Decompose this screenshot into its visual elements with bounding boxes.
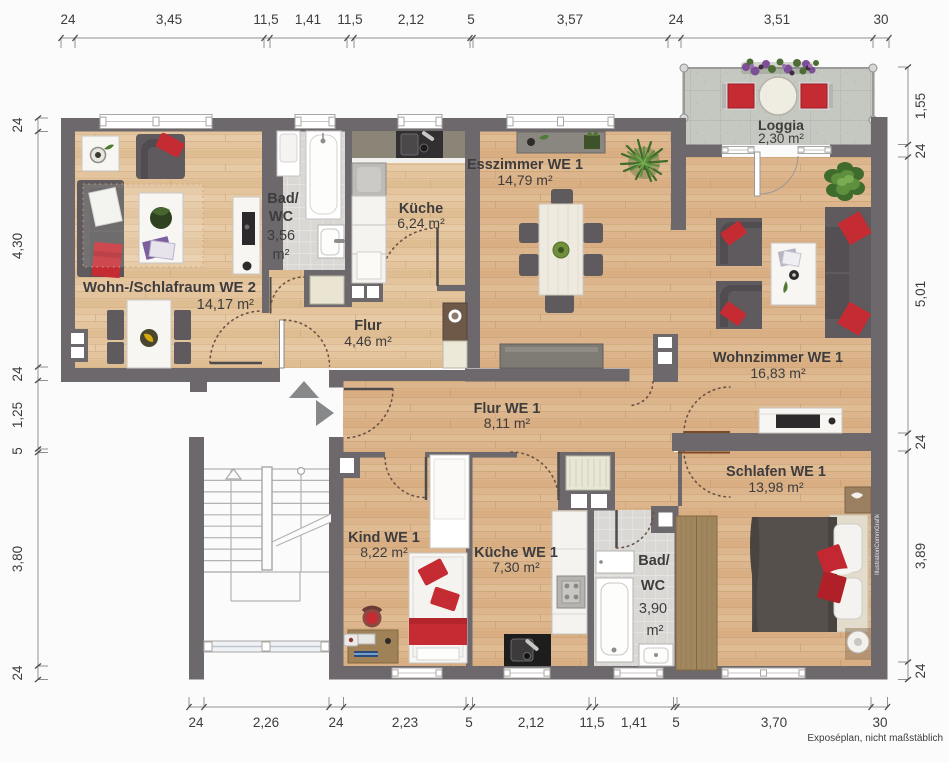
svg-text:24: 24 xyxy=(10,117,25,133)
svg-text:3,70: 3,70 xyxy=(761,715,787,730)
svg-text:3,51: 3,51 xyxy=(764,12,790,27)
svg-text:Esszimmer WE 1: Esszimmer WE 1 xyxy=(467,157,583,173)
svg-text:Bad/: Bad/ xyxy=(638,553,669,569)
svg-text:24: 24 xyxy=(913,663,928,679)
svg-text:3,89: 3,89 xyxy=(913,543,928,569)
svg-text:WC: WC xyxy=(641,578,666,594)
svg-text:14,17 m²: 14,17 m² xyxy=(197,297,254,313)
svg-text:Exposéplan, nicht maßstäblich: Exposéplan, nicht maßstäblich xyxy=(807,733,943,744)
svg-text:5: 5 xyxy=(465,715,473,730)
svg-text:24: 24 xyxy=(188,715,204,730)
svg-text:24: 24 xyxy=(10,665,25,681)
svg-text:Wohn-/Schlafraum WE 2: Wohn-/Schlafraum WE 2 xyxy=(83,279,256,296)
svg-text:3,56: 3,56 xyxy=(267,228,295,244)
svg-text:11,5: 11,5 xyxy=(579,715,604,730)
svg-text:2,23: 2,23 xyxy=(392,715,418,730)
svg-text:3,57: 3,57 xyxy=(557,12,583,27)
svg-text:2,26: 2,26 xyxy=(253,715,279,730)
svg-text:2,30 m²: 2,30 m² xyxy=(758,131,804,146)
svg-text:30: 30 xyxy=(873,12,888,27)
svg-text:Schlafen WE 1: Schlafen WE 1 xyxy=(726,464,826,480)
svg-text:5,01: 5,01 xyxy=(913,281,928,307)
svg-text:3,45: 3,45 xyxy=(156,12,182,27)
svg-text:14,79 m²: 14,79 m² xyxy=(497,172,553,188)
svg-text:6,24 m²: 6,24 m² xyxy=(397,215,445,231)
svg-text:1,25: 1,25 xyxy=(10,402,25,428)
svg-text:13,98 m²: 13,98 m² xyxy=(748,479,804,495)
svg-text:11,5: 11,5 xyxy=(337,12,362,27)
svg-text:2,12: 2,12 xyxy=(398,12,424,27)
svg-text:m²: m² xyxy=(647,623,664,639)
svg-text:24: 24 xyxy=(10,366,25,382)
svg-text:24: 24 xyxy=(913,143,928,159)
svg-text:16,83 m²: 16,83 m² xyxy=(750,365,806,381)
svg-text:3,80: 3,80 xyxy=(10,546,25,572)
svg-text:11,5: 11,5 xyxy=(253,12,278,27)
svg-text:24: 24 xyxy=(328,715,344,730)
svg-text:m²: m² xyxy=(273,247,290,263)
svg-text:30: 30 xyxy=(872,715,887,730)
svg-text:5: 5 xyxy=(467,12,475,27)
svg-text:24: 24 xyxy=(60,12,76,27)
svg-text:Bad/: Bad/ xyxy=(267,191,298,207)
svg-text:Flur: Flur xyxy=(354,318,382,334)
svg-text:1,41: 1,41 xyxy=(621,715,647,730)
svg-text:5: 5 xyxy=(10,447,25,455)
svg-text:IllustrationCommGrafik: IllustrationCommGrafik xyxy=(875,513,881,575)
svg-text:2,12: 2,12 xyxy=(518,715,544,730)
svg-text:8,22 m²: 8,22 m² xyxy=(360,544,408,560)
svg-text:4,46 m²: 4,46 m² xyxy=(344,333,392,349)
svg-text:1,41: 1,41 xyxy=(295,12,321,27)
svg-text:Wohnzimmer WE 1: Wohnzimmer WE 1 xyxy=(713,350,843,366)
svg-text:24: 24 xyxy=(668,12,684,27)
svg-text:1,55: 1,55 xyxy=(913,93,928,119)
svg-text:5: 5 xyxy=(672,715,680,730)
svg-text:7,30 m²: 7,30 m² xyxy=(492,559,540,575)
svg-text:3,90: 3,90 xyxy=(639,601,667,617)
svg-text:24: 24 xyxy=(913,434,928,450)
svg-text:4,30: 4,30 xyxy=(10,233,25,259)
svg-text:8,11 m²: 8,11 m² xyxy=(484,415,531,431)
svg-text:WC: WC xyxy=(269,209,294,225)
